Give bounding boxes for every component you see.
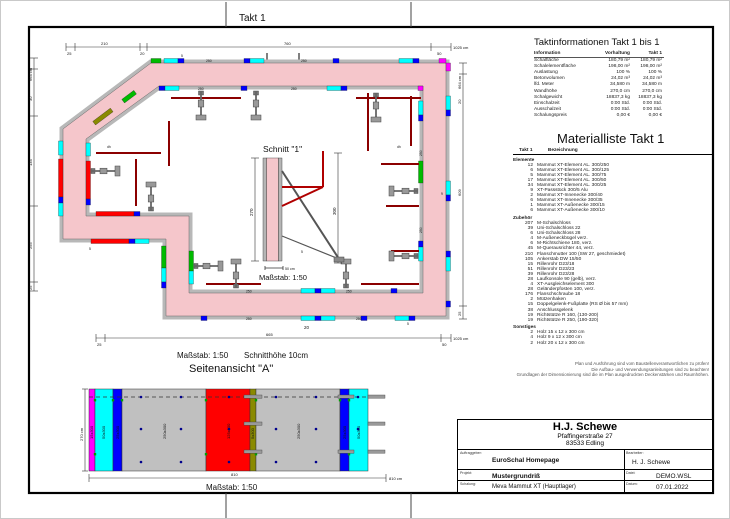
company-street: Pfaffingerstraße 27: [458, 433, 712, 440]
drawing-sheet: Takt 1 25 210 20 760 50 1025 cm "1" "A" …: [0, 0, 730, 519]
section-detail: Schnitt "1" 270 300 50 cm Maßstab: 1:50: [249, 144, 344, 282]
dim-label: 20: [140, 51, 145, 56]
takt-info-row: Schalungspreis 0,00 € 0,00 €: [534, 113, 664, 119]
material-item: 2 Holz 20 x 12 x 300 cm: [513, 341, 713, 346]
svg-text:5: 5: [89, 247, 91, 251]
field-projekt: Projekt: Mustergrundriß: [458, 470, 624, 481]
dim-top: [66, 43, 451, 51]
svg-text:dh: dh: [397, 145, 401, 149]
svg-text:250x300: 250x300: [162, 423, 167, 439]
plan-notes: Plan und Ausführung sind vom Baustellenv…: [501, 361, 709, 378]
field-schalung: Schalung: Meva Mammut XT (Hauptlager): [458, 481, 624, 492]
svg-text:250: 250: [419, 150, 423, 156]
sideview-total-dim: 810: [231, 472, 238, 477]
company-name: H.J. Schewe: [458, 420, 712, 433]
svg-text:50x300: 50x300: [101, 425, 106, 439]
takt-info-panel: Taktinformationen Takt 1 bis 1 Informati…: [534, 37, 664, 119]
material-item: 19 Richtstütze R 250, (190-320): [513, 318, 713, 323]
svg-text:25x300: 25x300: [342, 425, 347, 439]
sideview-height-dim: 270 cm: [79, 427, 84, 441]
sideview-cutheight-note: Schnitthöhe 10cm: [244, 351, 308, 360]
sideview-total-dim-label: 810 cm: [389, 476, 403, 481]
dim-label: 25: [97, 342, 102, 347]
takt-strip-label: Takt 1: [239, 13, 266, 24]
field-datum: Datum: 07.01.2022: [624, 481, 712, 492]
walkway-console: [282, 151, 323, 206]
material-items-elemente: 12 Mammut XT-Element AL. 300/250 6 Mammu…: [513, 163, 713, 214]
svg-text:250: 250: [356, 317, 362, 321]
dim-label: 609: [457, 189, 462, 196]
svg-text:dh: dh: [107, 145, 111, 149]
section-right-dim: 300: [332, 207, 337, 215]
material-items-zubehoer: 207 M-Schalschloss 39 Uni-Schalschloss 2…: [513, 221, 713, 323]
dim-label: 50: [442, 342, 447, 347]
svg-text:5: 5: [407, 322, 409, 326]
svg-text:125x300: 125x300: [226, 423, 231, 439]
note-line: Grundlagen der Dimensionierung sind die …: [501, 372, 709, 378]
field-datei: Datei: DEMO.WSL: [624, 470, 712, 481]
material-items-sonstiges: 2 Holz 15 x 12 x 300 cm 4 Holz 9 x 12 x …: [513, 330, 713, 345]
dim-total: 1025 cm: [453, 336, 469, 341]
section-scalebar-label: 50 cm: [285, 267, 295, 271]
svg-text:250: 250: [419, 227, 423, 233]
takt-info-rows: Schalfläche 180,79 m² 180,79 m² Schalele…: [534, 58, 664, 119]
side-view: Maßstab: 1:50 Schnitthöhe 10cm Seitenans…: [79, 351, 403, 492]
dim-label: 134: [28, 159, 33, 166]
svg-text:250: 250: [246, 290, 252, 294]
dim-label: 25: [67, 51, 72, 56]
svg-text:250: 250: [206, 59, 212, 63]
dim-label: 255: [28, 242, 33, 249]
section-title: Schnitt "1": [263, 144, 302, 154]
svg-text:20: 20: [304, 325, 310, 330]
dim-bottom: [96, 334, 451, 342]
material-list-header: Takt 1 Bezeichnung: [513, 148, 713, 155]
material-list-panel: Materialliste Takt 1 Takt 1 Bezeichnung …: [513, 131, 713, 346]
company-city: 83533 Edling: [458, 440, 712, 447]
dim-label: 760: [284, 41, 291, 46]
dim-label: 25: [28, 285, 33, 290]
dim-label: 665: [266, 332, 273, 337]
dim-left: [30, 58, 38, 291]
svg-text:250: 250: [198, 87, 204, 91]
svg-text:5: 5: [301, 250, 303, 254]
floor-plan: 25 210 20 760 50 1025 cm "1" "A" 15 664 …: [28, 41, 469, 347]
svg-text:50x300: 50x300: [356, 425, 361, 439]
svg-text:25x300: 25x300: [115, 425, 120, 439]
svg-text:9: 9: [441, 192, 443, 196]
dim-total: 1025 cm: [453, 45, 469, 50]
material-item: 6 Mammut XT-Außenecke 300/10: [513, 208, 713, 213]
sideview-scale-bottom: Maßstab: 1:50: [206, 483, 258, 492]
svg-text:250: 250: [291, 87, 297, 91]
dim-label: 50: [437, 51, 442, 56]
material-list-title: Materialliste Takt 1: [557, 131, 713, 146]
title-block: H.J. Schewe Pfaffingerstraße 27 83533 Ed…: [457, 419, 713, 493]
dim-label: 30: [28, 96, 33, 101]
sideview-title: Seitenansicht "A": [189, 363, 273, 375]
sideview-scale-note: Maßstab: 1:50: [177, 351, 229, 360]
svg-text:250: 250: [346, 290, 352, 294]
svg-text:250x300: 250x300: [296, 423, 301, 439]
dim-label: 210: [101, 41, 108, 46]
svg-text:15x300: 15x300: [89, 425, 94, 439]
takt-info-title: Taktinformationen Takt 1 bis 1: [534, 37, 664, 48]
section-scale: Maßstab: 1:50: [259, 273, 307, 282]
section-height-dim: 270: [249, 208, 254, 216]
svg-text:250: 250: [246, 317, 252, 321]
svg-text:250: 250: [301, 59, 307, 63]
svg-text:5x300: 5x300: [250, 427, 255, 439]
dim-total: 664 cm: [457, 75, 462, 89]
field-auftraggeber: Auftraggeber: EuroSchal Homepage: [458, 450, 624, 470]
dim-label: 25: [457, 311, 462, 316]
dim-total: 664 cm: [28, 67, 33, 81]
field-bearbeiter: Bearbeiter: H. J. Schewe: [624, 450, 712, 470]
section-scalebar: [265, 266, 283, 270]
dim-label: 20: [457, 99, 462, 104]
title-block-company: H.J. Schewe Pfaffingerstraße 27 83533 Ed…: [458, 420, 712, 450]
svg-text:5: 5: [181, 54, 183, 58]
